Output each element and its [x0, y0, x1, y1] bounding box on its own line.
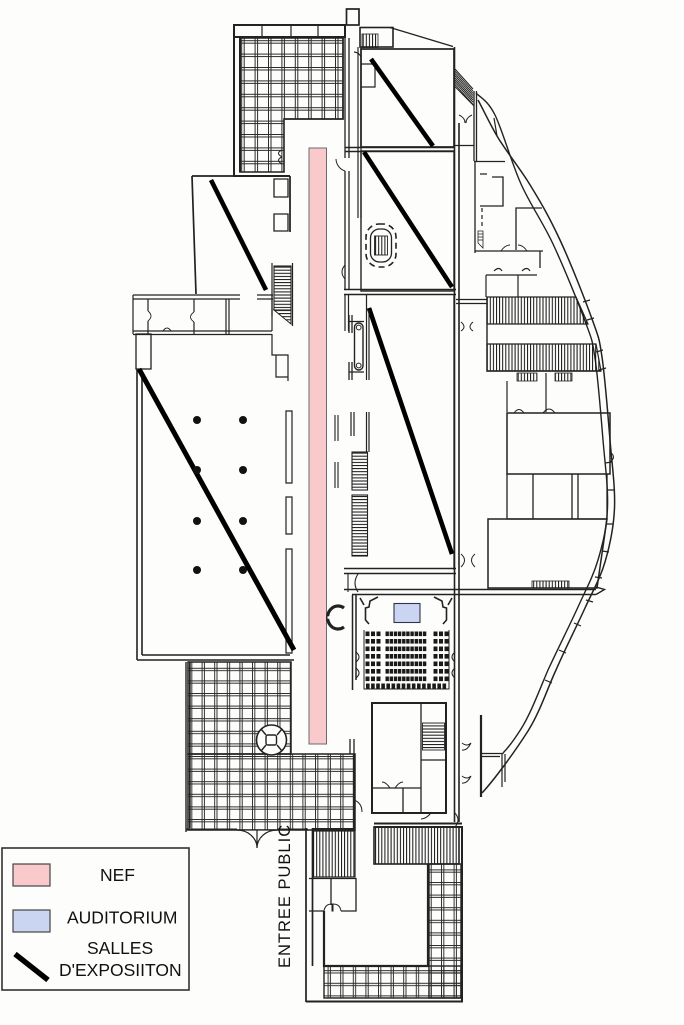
svg-text:AUDITORIUM: AUDITORIUM — [67, 908, 178, 928]
svg-text:ENTREE PUBLIC: ENTREE PUBLIC — [276, 824, 294, 968]
svg-text:NEF: NEF — [100, 865, 135, 885]
svg-text:SALLES: SALLES — [87, 938, 153, 958]
svg-text:D'EXPOSIITON: D'EXPOSIITON — [59, 960, 182, 980]
